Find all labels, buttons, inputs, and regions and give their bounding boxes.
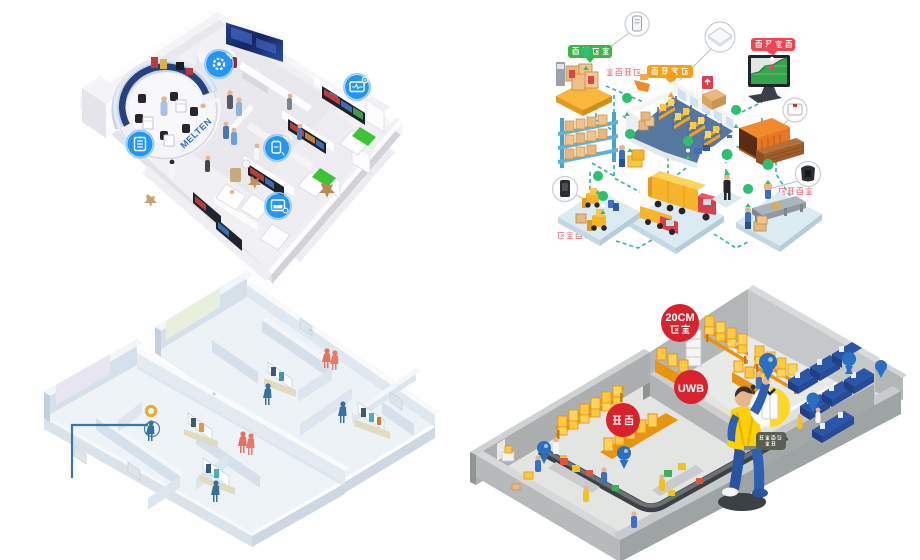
svg-text:UWB: UWB — [678, 383, 704, 395]
svg-text:20CM: 20CM — [665, 312, 694, 324]
